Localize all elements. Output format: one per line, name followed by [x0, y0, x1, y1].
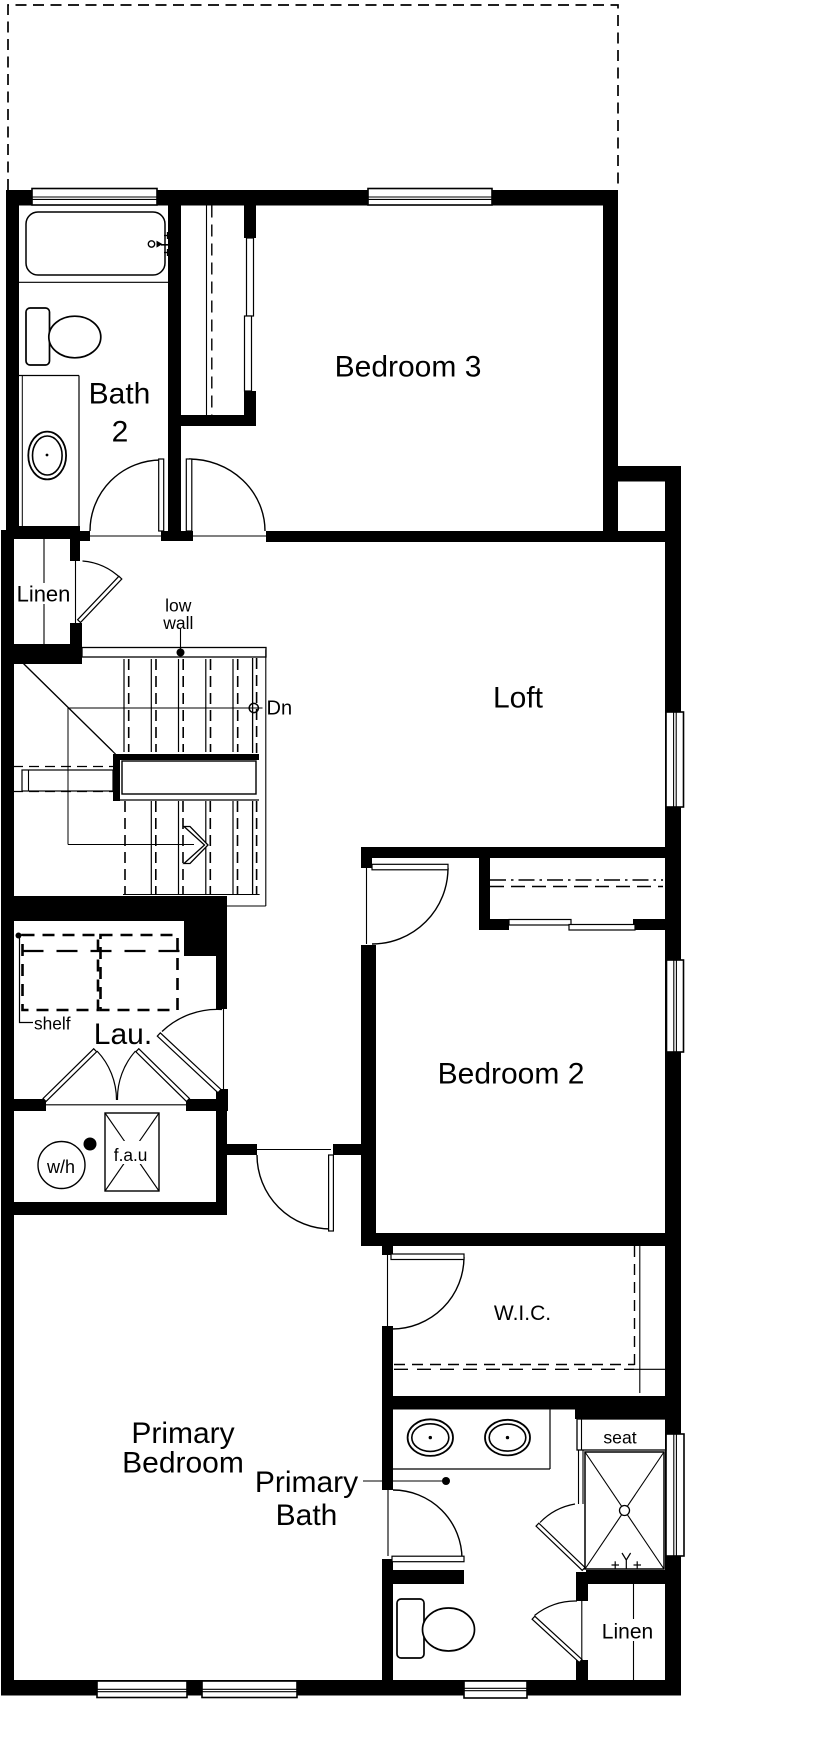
- svg-text:Lau.: Lau.: [94, 1018, 152, 1051]
- svg-text:Linen: Linen: [602, 1620, 653, 1643]
- svg-text:Primary: Primary: [255, 1466, 358, 1499]
- svg-text:seat: seat: [603, 1427, 636, 1447]
- svg-text:f.a.u: f.a.u: [114, 1145, 148, 1165]
- svg-text:Primary: Primary: [131, 1417, 234, 1450]
- svg-text:Dn: Dn: [267, 698, 293, 720]
- svg-text:Loft: Loft: [493, 682, 544, 715]
- svg-text:Bedroom 3: Bedroom 3: [335, 351, 482, 384]
- svg-text:W.I.C.: W.I.C.: [494, 1302, 551, 1325]
- svg-text:shelf: shelf: [34, 1014, 71, 1034]
- svg-text:Linen: Linen: [17, 582, 71, 607]
- svg-text:wall: wall: [162, 613, 193, 633]
- svg-text:Bath: Bath: [89, 378, 151, 411]
- svg-text:Bedroom 2: Bedroom 2: [438, 1058, 585, 1091]
- svg-text:2: 2: [112, 416, 129, 449]
- svg-text:Bath: Bath: [276, 1499, 338, 1532]
- svg-text:w/h: w/h: [46, 1157, 75, 1177]
- svg-text:Bedroom: Bedroom: [122, 1447, 244, 1480]
